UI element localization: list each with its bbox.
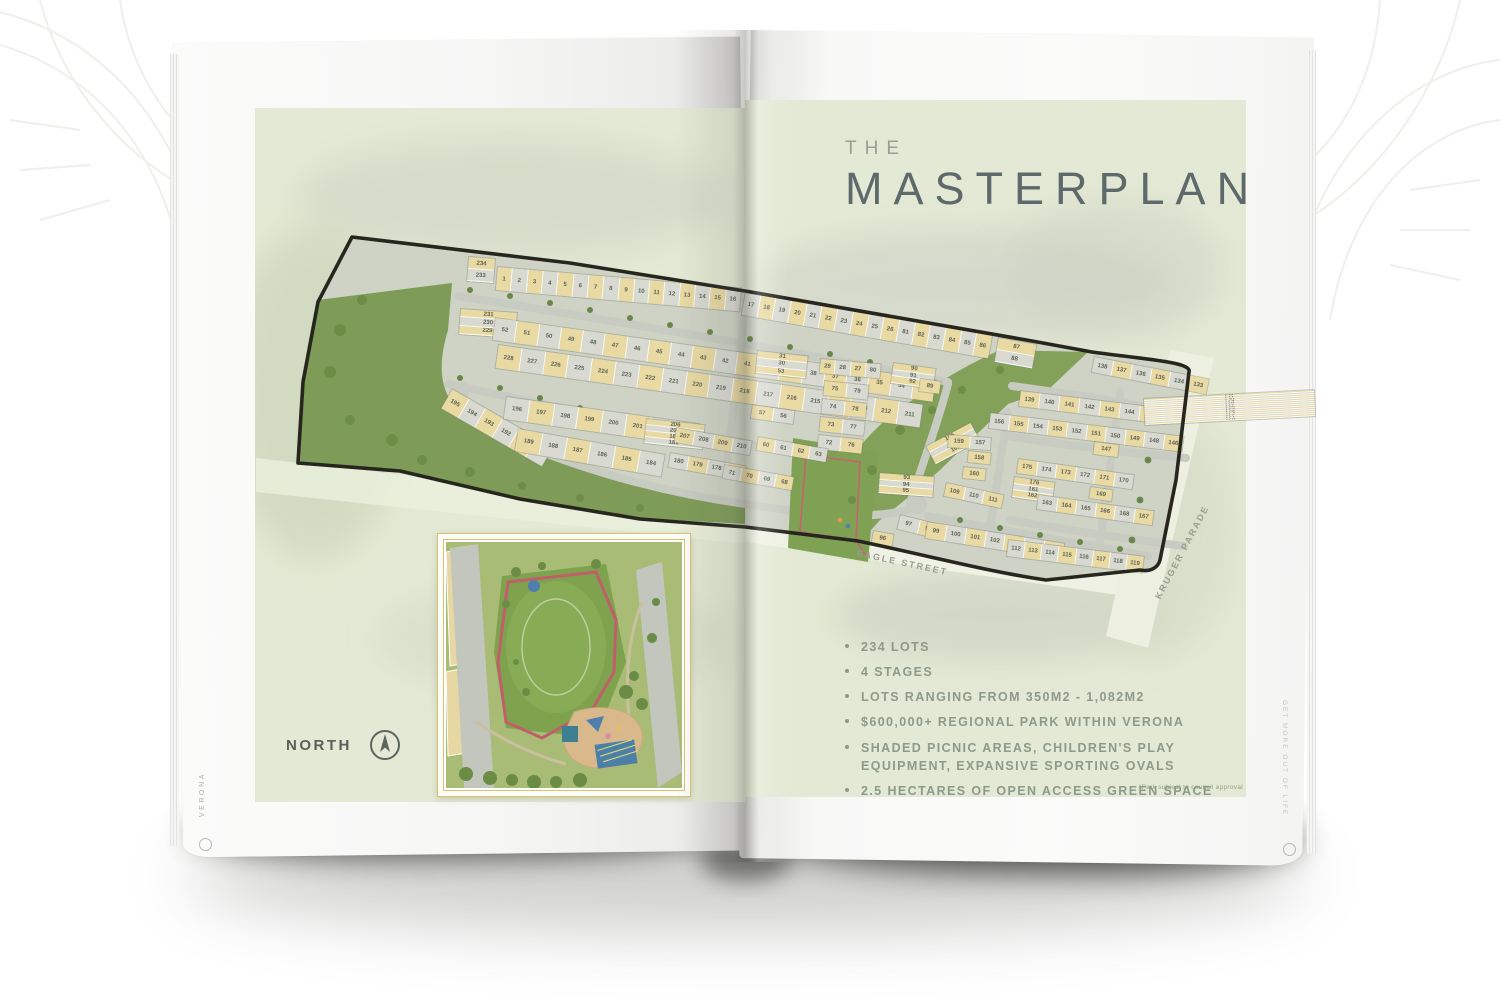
feature-text: 4 STAGES [861,663,933,681]
page-marker-left [199,838,212,851]
feature-item: SHADED PICNIC AREAS, CHILDREN'S PLAY EQU… [845,739,1205,775]
compass-icon [366,726,404,764]
spine-text-right: GET MORE OUT OF LIFE [1281,700,1288,816]
park-inset-illustration [443,539,685,791]
page-title: THE MASTERPLAN [845,138,1175,215]
feature-item: 4 STAGES [845,663,1275,681]
feature-text: 234 LOTS [861,638,930,656]
bullet-dot [845,644,849,648]
feature-item: LOTS RANGING FROM 350M2 - 1,082M2 [845,688,1275,706]
north-label: NORTH [286,737,352,754]
features-list: 234 LOTS 4 STAGES LOTS RANGING FROM 350M… [845,638,1275,807]
disclaimer-text: *Park subject to council approval [1000,784,1243,791]
bullet-dot [845,788,849,792]
page-marker-right [1283,843,1296,856]
title-pre: THE [845,138,1175,160]
bullet-dot [845,694,849,698]
north-marker: NORTH [286,726,404,764]
park-inset-frame [437,533,691,797]
feature-text: LOTS RANGING FROM 350M2 - 1,082M2 [861,688,1145,706]
feature-text: $600,000+ REGIONAL PARK WITHIN VERONA [861,713,1184,731]
title-main: MASTERPLAN [845,163,1175,215]
bullet-dot [845,669,849,673]
feature-item: 234 LOTS [845,638,1275,656]
page-stack-right-edge [1307,50,1316,854]
spine-text-left: VERONA [199,772,206,817]
bullet-dot [845,719,849,723]
bullet-dot [845,745,849,749]
feature-text: SHADED PICNIC AREAS, CHILDREN'S PLAY EQU… [861,739,1205,775]
feature-item: $600,000+ REGIONAL PARK WITHIN VERONA [845,713,1275,731]
page-stack-left-edge [170,54,179,846]
